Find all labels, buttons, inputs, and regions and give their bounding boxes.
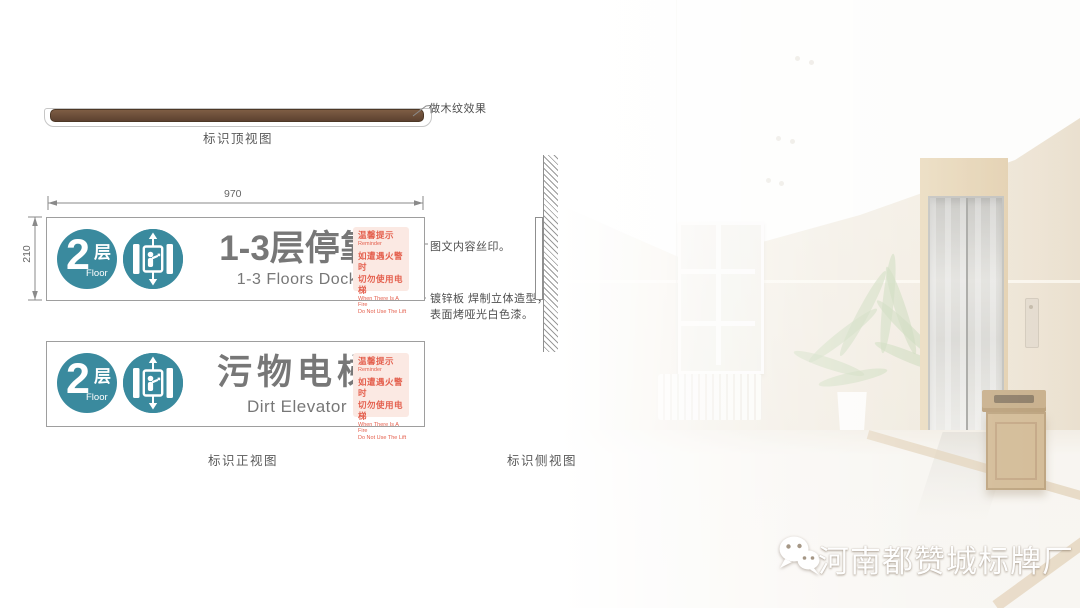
warning-line: Reminder [358, 367, 409, 374]
floor-en-label: Floor [86, 392, 108, 403]
floor-badge: 2 层 Floor [57, 353, 117, 413]
warning-line: 切勿使用电梯 [358, 400, 409, 422]
side-view-sign-profile [535, 217, 543, 300]
dim-arrow [32, 291, 38, 300]
dim-arrow [414, 200, 423, 206]
warning-line: When There Is A Fire [358, 422, 409, 436]
warning-line: 温馨提示 [358, 230, 409, 241]
warning-line: 如遭遇火警时 [358, 251, 409, 273]
sign-floors-dock: 2 层 Floor 1-3层停靠 1-3 Floors Dock [46, 217, 425, 301]
elevator-pictogram [123, 353, 183, 413]
elevator-icon [123, 353, 183, 413]
note-silkscreen: 图文内容丝印。 [430, 238, 511, 254]
dim-arrow [48, 200, 57, 206]
warning-line: 温馨提示 [358, 356, 409, 367]
warning-line: 如遭遇火警时 [358, 377, 409, 399]
top-view-label: 标识顶视图 [203, 128, 273, 147]
floor-cn-label: 层 [94, 362, 111, 387]
note-material-1: 镀锌板 焊制立体造型， [430, 290, 549, 306]
photo-wash-overlay [560, 0, 1080, 608]
warning-line: Do Not Use The Lift [358, 309, 409, 316]
floor-cn-label: 层 [94, 238, 111, 263]
elevator-pictogram [123, 229, 183, 289]
brand-watermark: 河南都赞城标牌厂 [818, 536, 1074, 581]
note-material-2: 表面烤哑光白色漆。 [430, 306, 534, 322]
note-wood-grain: 做木纹效果 [429, 100, 487, 116]
lobby-photo [560, 0, 1080, 608]
dim-height-value: 210 [21, 245, 33, 263]
dim-arrow [32, 217, 38, 226]
wechat-icon [778, 533, 820, 577]
dim-width-value: 970 [224, 188, 242, 200]
front-view-label: 标识正视图 [208, 450, 278, 469]
warning-line: When There Is A Fire [358, 296, 409, 310]
sign-dirt-elevator: 2 层 Floor 污物电梯 Dirt Elevator 温馨提 [46, 341, 425, 427]
sign-top-view-wood-bar [50, 109, 424, 122]
warning-block: 温馨提示 Reminder 如遭遇火警时 切勿使用电梯 When There I… [353, 353, 409, 417]
floor-badge: 2 层 Floor [57, 229, 117, 289]
design-canvas: 做木纹效果 标识顶视图 970 210 2 层 Floor [0, 0, 1080, 608]
warning-block: 温馨提示 Reminder 如遭遇火警时 切勿使用电梯 When There I… [353, 227, 409, 291]
side-view-wall-hatch [543, 155, 558, 352]
warning-line: Do Not Use The Lift [358, 435, 409, 442]
warning-line: Reminder [358, 241, 409, 248]
warning-line: 切勿使用电梯 [358, 274, 409, 296]
side-view-label: 标识侧视图 [507, 450, 577, 469]
elevator-icon [123, 229, 183, 289]
floor-en-label: Floor [86, 268, 108, 279]
